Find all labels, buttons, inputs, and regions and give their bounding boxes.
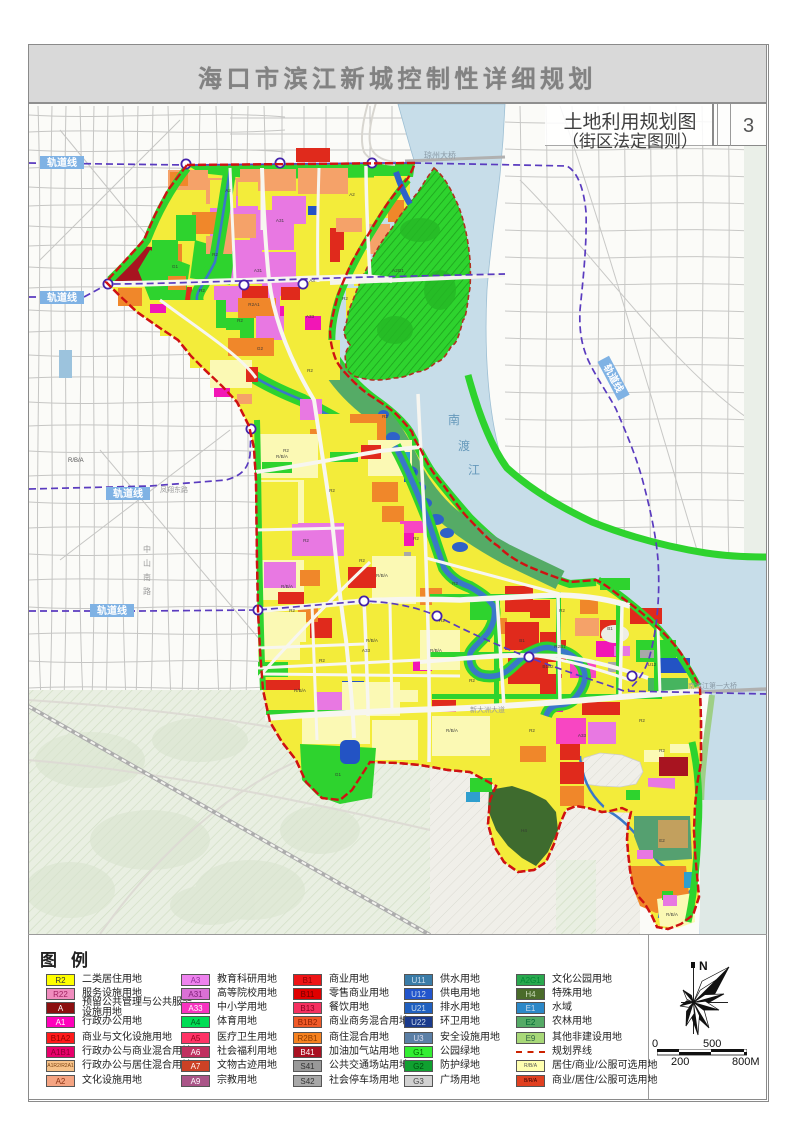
svg-text:R/B/A: R/B/A [666, 912, 679, 917]
svg-text:B1: B1 [519, 638, 525, 643]
svg-text:R2: R2 [289, 608, 295, 613]
svg-text:南: 南 [143, 572, 151, 582]
svg-text:R/B/A: R/B/A [446, 728, 459, 733]
svg-text:R2: R2 [529, 728, 535, 733]
svg-text:R2: R2 [329, 488, 335, 493]
svg-text:R/B/A: R/B/A [68, 458, 84, 464]
svg-text:凤翔东路: 凤翔东路 [160, 485, 188, 494]
svg-text:R2: R2 [319, 658, 325, 663]
svg-text:R/B/A: R/B/A [430, 648, 443, 653]
svg-text:R2B1: R2B1 [554, 644, 566, 649]
svg-text:R2: R2 [212, 252, 218, 257]
svg-text:R/B/A: R/B/A [281, 584, 294, 589]
svg-text:渡: 渡 [458, 438, 470, 453]
svg-text:江: 江 [468, 463, 480, 477]
svg-text:R2: R2 [283, 448, 289, 453]
svg-text:G1: G1 [172, 264, 179, 269]
svg-text:轨道线: 轨道线 [47, 291, 77, 304]
svg-text:R2: R2 [199, 288, 205, 293]
svg-text:A33: A33 [578, 733, 587, 738]
svg-text:B1: B1 [607, 626, 613, 631]
svg-text:N: N [699, 959, 708, 973]
svg-text:R2: R2 [659, 748, 665, 753]
svg-text:A2G1: A2G1 [392, 268, 404, 273]
svg-text:R2: R2 [559, 608, 565, 613]
svg-text:R/B/A: R/B/A [294, 688, 307, 693]
svg-text:R/B/A: R/B/A [366, 638, 379, 643]
svg-text:R2: R2 [359, 558, 365, 563]
svg-text:南渡江第一大桥: 南渡江第一大桥 [688, 681, 737, 690]
svg-text:A2: A2 [349, 192, 355, 197]
svg-text:山: 山 [143, 558, 151, 568]
svg-text:R2: R2 [342, 296, 348, 301]
svg-text:R2: R2 [639, 718, 645, 723]
svg-text:R2: R2 [307, 368, 313, 373]
svg-text:A31: A31 [276, 218, 285, 223]
svg-text:A31: A31 [254, 268, 263, 273]
svg-text:B1B2: B1B2 [542, 664, 554, 669]
svg-text:A2: A2 [225, 188, 231, 193]
svg-text:轨道线: 轨道线 [47, 156, 77, 169]
svg-text:R2A1: R2A1 [248, 302, 260, 307]
svg-text:A33: A33 [306, 314, 315, 319]
svg-text:R2: R2 [413, 536, 419, 541]
svg-text:轨道线: 轨道线 [113, 487, 143, 500]
svg-text:琼州大桥: 琼州大桥 [424, 150, 456, 160]
svg-text:R/B/A: R/B/A [276, 454, 289, 459]
svg-text:R2: R2 [439, 618, 445, 623]
svg-text:A33: A33 [362, 648, 371, 653]
svg-text:G1: G1 [335, 772, 342, 777]
svg-text:路: 路 [143, 586, 151, 596]
svg-text:A3: A3 [309, 278, 315, 283]
svg-text:R/B/A: R/B/A [376, 573, 389, 578]
svg-text:中: 中 [143, 544, 151, 554]
svg-text:R2: R2 [452, 581, 458, 586]
svg-text:新大洲大道: 新大洲大道 [470, 705, 505, 714]
svg-text:G2: G2 [257, 346, 264, 351]
svg-text:U12: U12 [648, 662, 657, 667]
svg-text:R2: R2 [303, 538, 309, 543]
svg-text:R2: R2 [469, 678, 475, 683]
svg-text:南: 南 [448, 412, 460, 427]
svg-text:H4: H4 [521, 828, 527, 833]
svg-text:R2: R2 [382, 414, 388, 419]
svg-text:R2: R2 [237, 318, 243, 323]
svg-text:E2: E2 [659, 838, 665, 843]
svg-text:轨道线: 轨道线 [97, 604, 127, 617]
